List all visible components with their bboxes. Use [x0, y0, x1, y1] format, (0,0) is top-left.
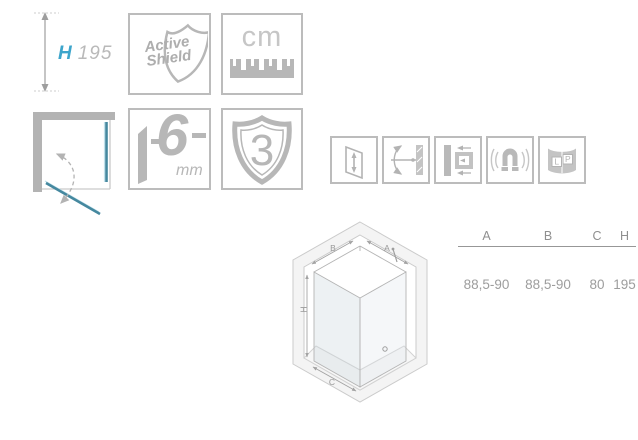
height-dimension-arrow [32, 8, 60, 96]
cm-label: cm [223, 21, 301, 54]
left-label: L [554, 156, 559, 166]
plan-door-open [46, 183, 100, 214]
warranty-years: 3 [250, 126, 274, 175]
left-right-icon: L P [542, 140, 582, 180]
height-dimension-label: H195 [58, 43, 112, 65]
height-value: 195 [78, 43, 113, 64]
size-table-divider [458, 246, 636, 247]
col-h-header: H [613, 229, 636, 243]
isometric-enclosure-diagram: B A H C [290, 218, 430, 410]
floor-plan-diagram [20, 102, 142, 220]
warranty-shield-icon: 3 [229, 114, 295, 186]
cm-unit-badge: cm [221, 13, 303, 95]
value-c: 80 [581, 277, 613, 292]
door-swing-icon [386, 140, 426, 180]
height-letter: H [58, 43, 73, 64]
magnet-icon [490, 140, 530, 180]
feature-wall-profile-adjust [434, 136, 482, 184]
value-h: 195 [613, 277, 636, 292]
col-a-header: A [458, 229, 515, 243]
feature-door-height-adjust [330, 136, 378, 184]
door-height-adjust-icon [334, 140, 374, 180]
ruler-icon [230, 59, 294, 81]
col-b-header: B [515, 229, 581, 243]
wall-profile-adjust-icon [438, 140, 478, 180]
feature-left-right-universal: L P [538, 136, 586, 184]
right-label: P [565, 154, 571, 164]
plan-left-wall [33, 112, 42, 192]
iso-dim-c-label: C [329, 377, 335, 387]
iso-dim-a-label: A [384, 243, 390, 253]
feature-magnetic-closure [486, 136, 534, 184]
value-a: 88,5-90 [458, 277, 515, 292]
size-table-header: A B C H [458, 229, 636, 243]
spec-sheet: H195 Active Shield cm 6 [0, 0, 638, 440]
size-table-values: 88,5-90 88,5-90 80 195 [458, 277, 636, 292]
feature-door-swing [382, 136, 430, 184]
active-shield-badge: Active Shield [128, 13, 211, 95]
iso-dim-b-label: B [330, 243, 336, 253]
value-b: 88,5-90 [515, 277, 581, 292]
warranty-shield-badge: 3 [221, 108, 303, 190]
col-c-header: C [581, 229, 613, 243]
plan-top-wall [33, 112, 115, 120]
thickness-unit: mm [176, 162, 203, 180]
thickness-value: 6 [156, 102, 188, 169]
iso-dim-h-label: H [299, 306, 309, 312]
